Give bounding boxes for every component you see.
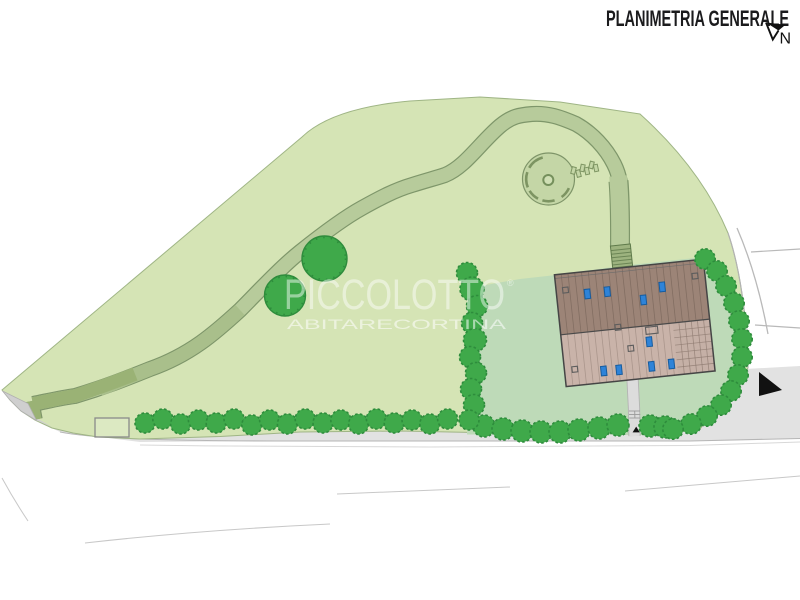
svg-text:ABITARECORTINA: ABITARECORTINA	[287, 316, 507, 332]
svg-text:®: ®	[507, 278, 514, 288]
svg-text:PLANIMETRIA GENERALE: PLANIMETRIA GENERALE	[606, 6, 789, 31]
svg-text:N: N	[780, 31, 792, 48]
svg-text:PICCOLOTTO: PICCOLOTTO	[284, 271, 505, 319]
